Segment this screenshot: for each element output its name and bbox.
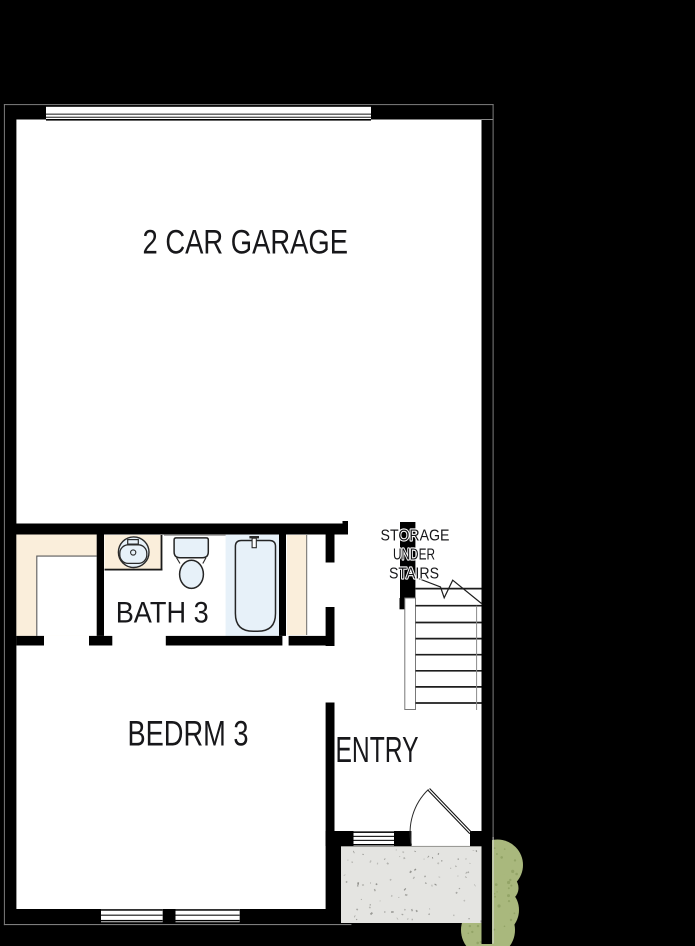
svg-text:STAIRS: STAIRS: [389, 566, 439, 583]
svg-text:BATH 3: BATH 3: [116, 597, 209, 630]
svg-text:2 CAR GARAGE: 2 CAR GARAGE: [143, 224, 349, 262]
svg-text:BEDRM 3: BEDRM 3: [128, 715, 249, 754]
svg-text:UNDER: UNDER: [393, 547, 435, 564]
svg-text:ENTRY: ENTRY: [336, 729, 419, 770]
svg-text:STORAGE: STORAGE: [381, 528, 450, 545]
